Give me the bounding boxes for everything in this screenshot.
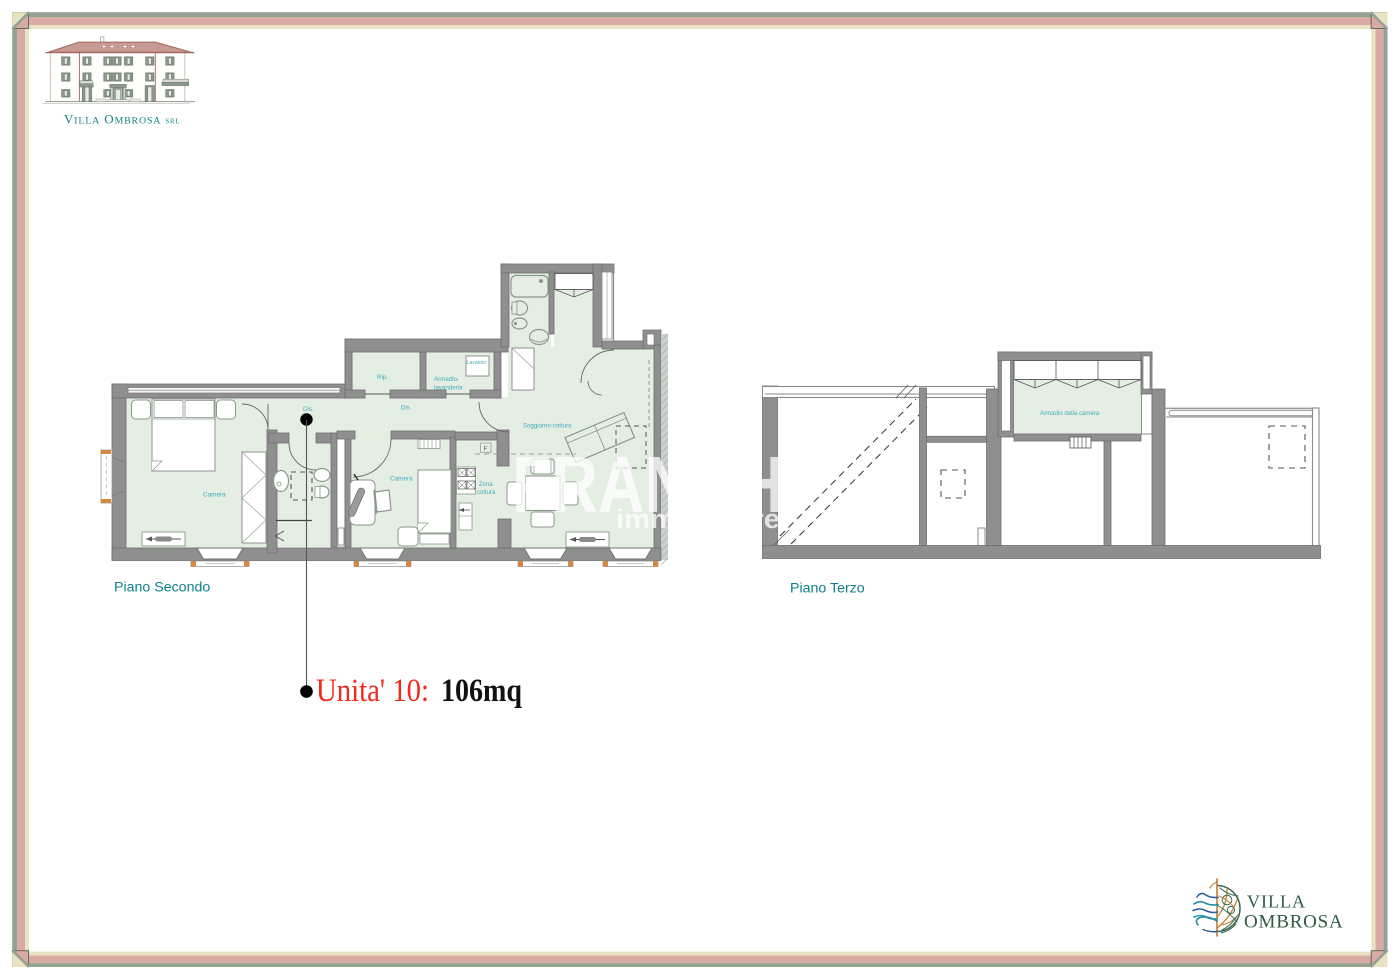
svg-text:immobiliare: immobiliare (616, 504, 780, 534)
svg-text:Camera: Camera (390, 476, 413, 483)
svg-text:F: F (484, 446, 488, 453)
svg-text:Piano Secondo: Piano Secondo (114, 580, 210, 596)
svg-text:Armadio-: Armadio- (434, 376, 459, 383)
svg-text:Zona: Zona (479, 482, 493, 488)
svg-text:VILLA: VILLA (1247, 892, 1306, 912)
svg-text:Dis.: Dis. (303, 406, 314, 413)
svg-text:Camera: Camera (203, 492, 226, 499)
svg-text:Lavatoio: Lavatoio (467, 360, 487, 366)
svg-text:Unita' 10:: Unita' 10: (316, 673, 429, 709)
svg-text:Soggiorno-cottura: Soggiorno-cottura (523, 423, 572, 430)
svg-text:OMBROSA: OMBROSA (1244, 912, 1344, 933)
svg-text:cottura: cottura (477, 490, 496, 496)
svg-text:106mq: 106mq (441, 673, 522, 709)
svg-text:Rip.: Rip. (377, 374, 388, 381)
svg-text:Armadio della camera: Armadio della camera (1040, 410, 1100, 417)
svg-text:Dis.: Dis. (401, 405, 412, 412)
svg-text:Piano Terzo: Piano Terzo (790, 581, 865, 597)
svg-text:lavanderia: lavanderia (434, 385, 463, 392)
